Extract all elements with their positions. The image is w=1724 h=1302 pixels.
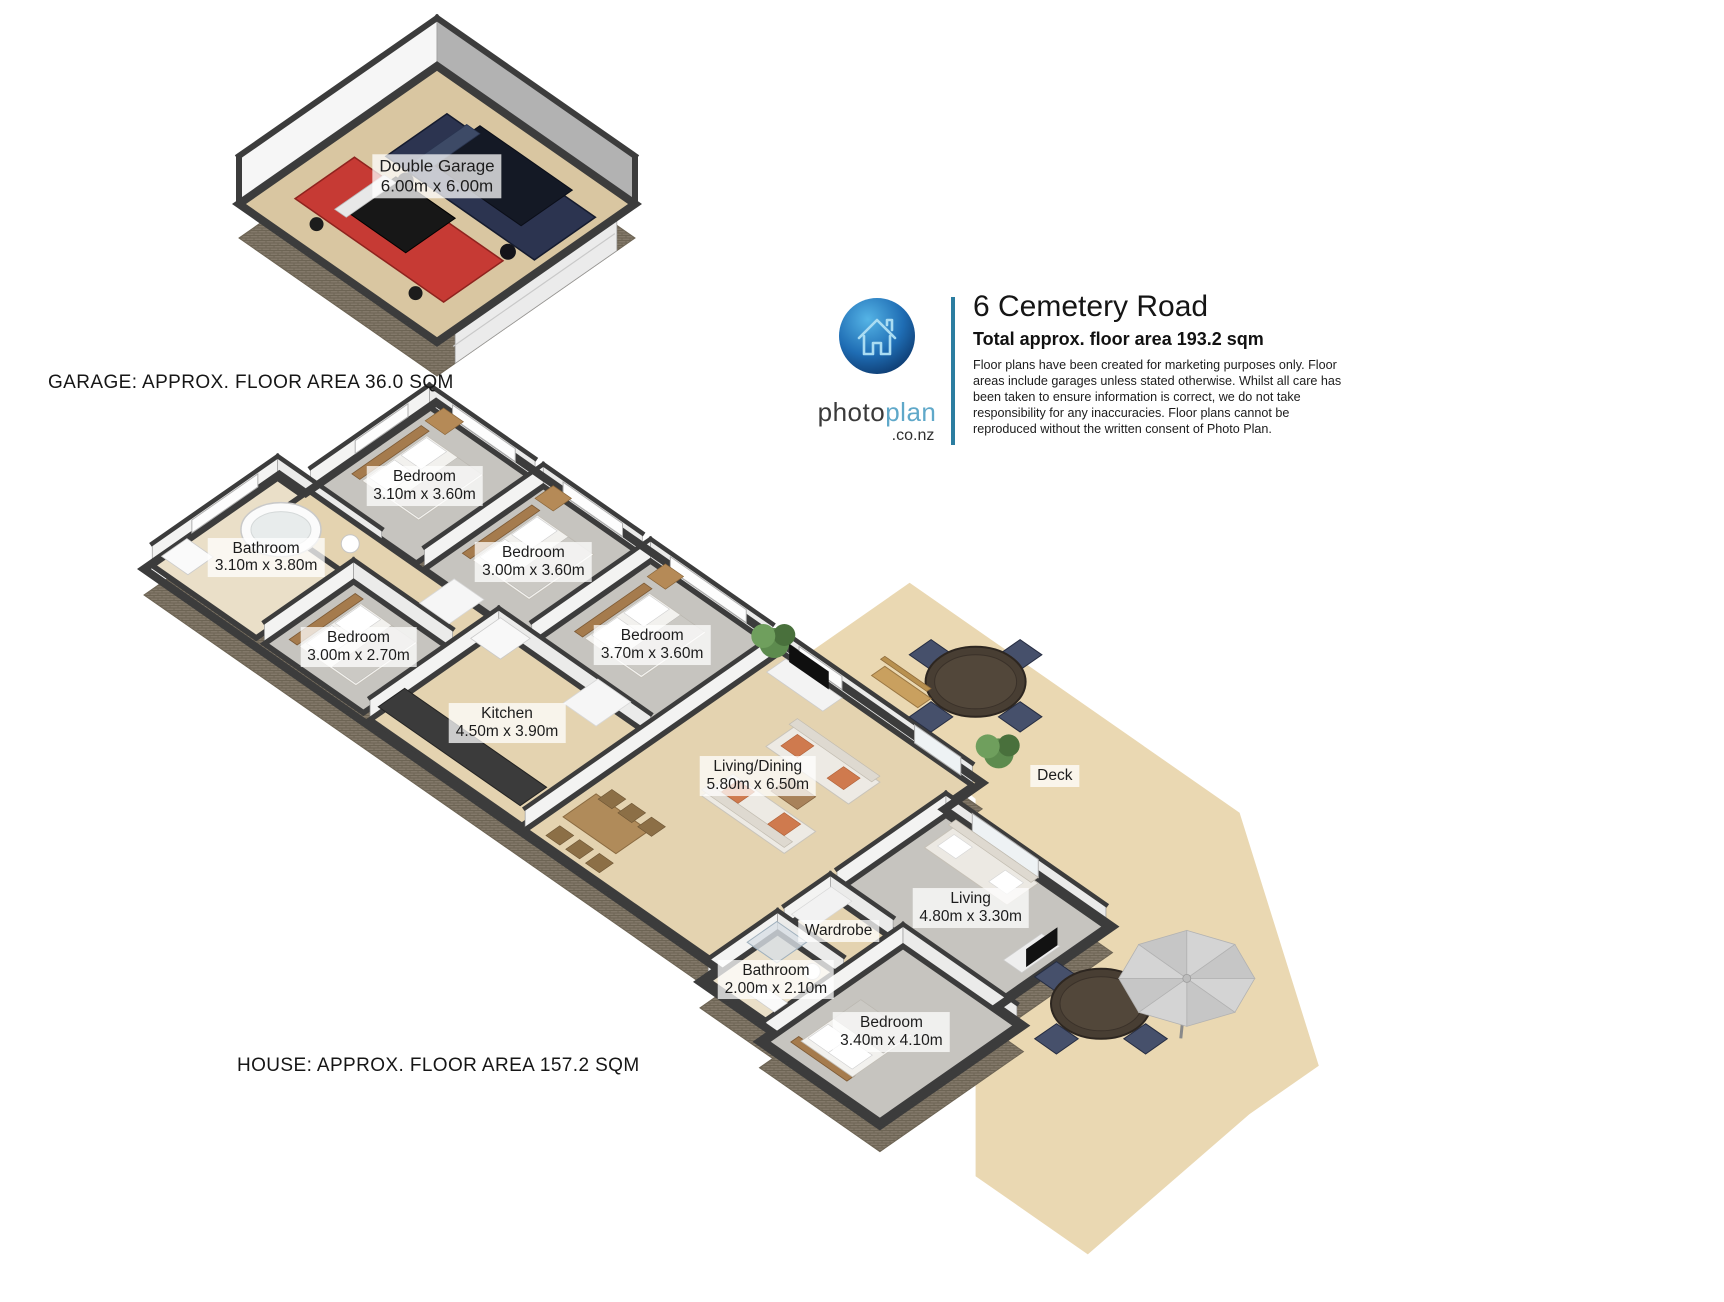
room-label-bathroom1: Bathroom3.10m x 3.80m (208, 538, 325, 578)
brand-name: photoplan (818, 399, 937, 425)
room-dimensions: 2.00m x 2.10m (725, 980, 828, 998)
room-label-bathroom2: Bathroom2.00m x 2.10m (718, 960, 835, 1000)
room-label-bedroom5: Bedroom3.40m x 4.10m (833, 1012, 950, 1052)
room-dimensions: 4.80m x 3.30m (919, 908, 1022, 926)
room-dimensions: 3.10m x 3.60m (373, 486, 476, 504)
room-name: Bathroom (725, 962, 828, 980)
room-label-living2: Living4.80m x 3.30m (912, 888, 1029, 928)
room-dimensions: 3.00m x 2.70m (307, 647, 410, 665)
brand-wordmark: photoplan .co.nz (818, 399, 937, 444)
suv-car-wheel (500, 244, 516, 260)
disclaimer-text: Floor plans have been created for market… (973, 358, 1345, 438)
floorplan-page: GARAGE: APPROX. FLOOR AREA 36.0 SQM HOUS… (0, 0, 1724, 1302)
room-name: Bedroom (482, 544, 585, 562)
room-label-livingdining: Living/Dining5.80m x 6.50m (700, 756, 817, 796)
plant (751, 624, 775, 648)
plant (773, 624, 795, 646)
room-name: Living/Dining (707, 758, 810, 776)
room-dimensions: 3.70m x 3.60m (601, 645, 704, 663)
brand-domain: .co.nz (818, 428, 937, 444)
room-label-kitchen: Kitchen4.50m x 3.90m (449, 703, 566, 743)
room-label-bedroom2: Bedroom3.00m x 3.60m (475, 542, 592, 582)
property-title: 6 Cemetery Road (973, 290, 1208, 324)
header-divider (951, 297, 955, 445)
room-name: Deck (1037, 767, 1072, 785)
room-name: Kitchen (456, 705, 559, 723)
room-dimensions: 3.40m x 4.10m (840, 1032, 943, 1050)
floorplan-canvas (0, 0, 1724, 1302)
red-car-wheel (310, 217, 324, 231)
room-name: Bedroom (840, 1014, 943, 1032)
red-car-wheel (409, 286, 423, 300)
umbrella-hub (1183, 974, 1191, 982)
room-label-deck: Deck (1030, 765, 1079, 787)
total-area-subtitle: Total approx. floor area 193.2 sqm (973, 329, 1264, 350)
room-dimensions: 4.50m x 3.90m (456, 723, 559, 741)
room-dimensions: 3.00m x 3.60m (482, 562, 585, 580)
house-area-caption: HOUSE: APPROX. FLOOR AREA 157.2 SQM (237, 1055, 640, 1077)
garage-area-caption: GARAGE: APPROX. FLOOR AREA 36.0 SQM (48, 372, 454, 394)
plant (998, 734, 1020, 756)
room-name: Wardrobe (805, 922, 872, 940)
room-name: Double Garage (379, 157, 494, 177)
deck-table-1-table-top (935, 655, 1017, 709)
room-name: Bedroom (307, 629, 410, 647)
photoplan-logo house-icon (835, 294, 919, 378)
room-name: Bedroom (373, 468, 476, 486)
room-dimensions: 3.10m x 3.80m (215, 558, 318, 576)
plant (976, 734, 1000, 758)
brand-photo: photo (818, 397, 886, 427)
brand-plan: plan (885, 397, 936, 427)
room-label-bedroom3: Bedroom3.70m x 3.60m (594, 625, 711, 665)
room-label-bedroom4: Bedroom3.00m x 2.70m (300, 627, 417, 667)
room-name: Living (919, 890, 1022, 908)
room-label-wardrobe: Wardrobe (798, 920, 879, 942)
room-label-bedroom1: Bedroom3.10m x 3.60m (366, 466, 483, 506)
room-label-garage: Double Garage6.00m x 6.00m (372, 155, 501, 198)
room-name: Bathroom (215, 540, 318, 558)
room-dimensions: 5.80m x 6.50m (707, 776, 810, 794)
room-dimensions: 6.00m x 6.00m (379, 176, 494, 196)
toilet (341, 535, 359, 553)
room-name: Bedroom (601, 627, 704, 645)
